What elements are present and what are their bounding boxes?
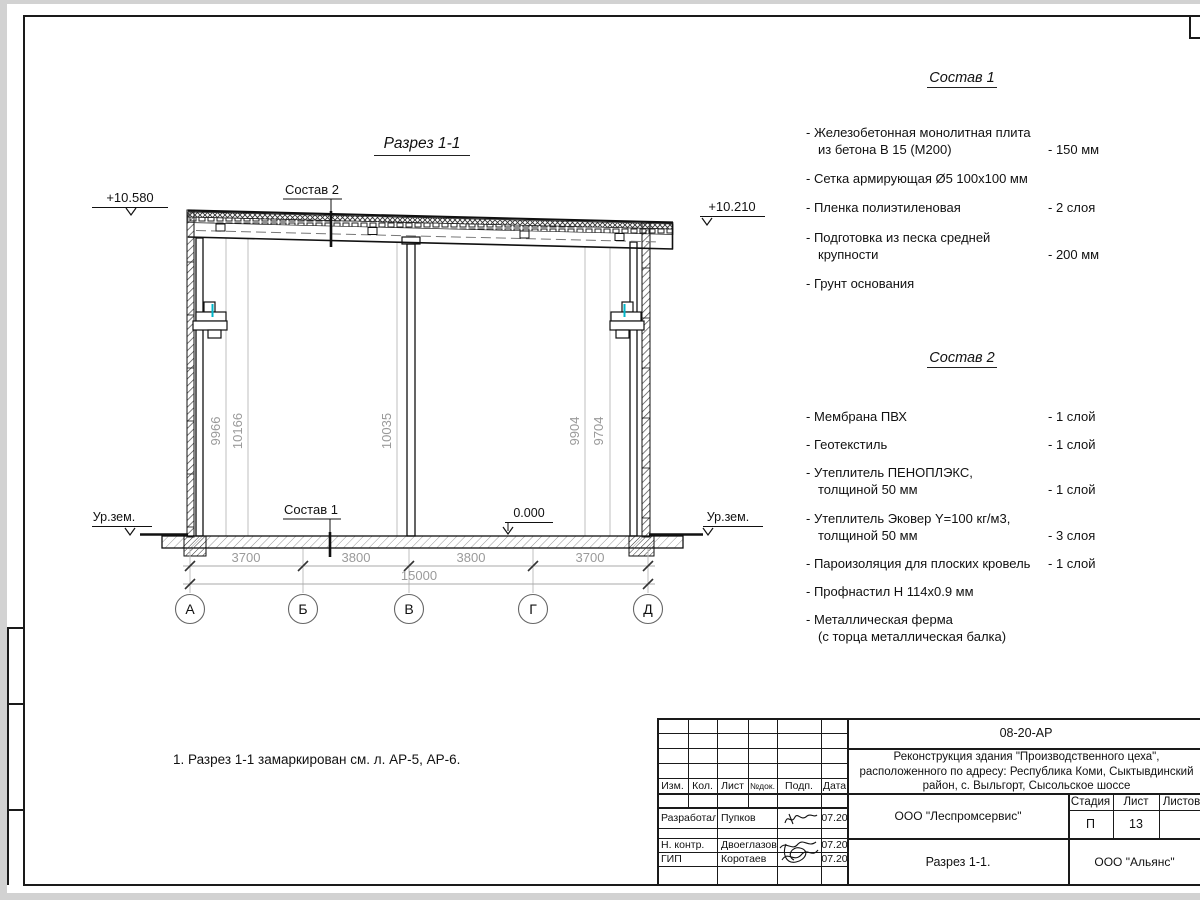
tb-col-list: Лист <box>717 778 748 793</box>
tb-col-izm: Изм. <box>657 778 688 793</box>
tb-col-ndoc: №док. <box>748 778 777 793</box>
tb-row-role: Н. контр. <box>661 838 716 852</box>
tb-stage-value: П <box>1068 810 1113 838</box>
tb-row-name: Коротаев <box>721 852 777 866</box>
tb-col-podp: Подп. <box>777 778 821 793</box>
tb-row-date: 07.20 <box>821 838 848 852</box>
tb-row-role: Разработал <box>661 808 716 828</box>
tb-sheets-label: Листов <box>1159 793 1200 810</box>
title-block: Изм. Кол. Лист №док. Подп. Дата Разработ… <box>0 0 1200 900</box>
tb-sheet-title: Разрез 1-1. <box>848 839 1068 885</box>
tb-col-kol: Кол. <box>688 778 717 793</box>
tb-row-date: 07.20 <box>821 852 848 866</box>
tb-row-role: ГИП <box>661 852 716 866</box>
tb-contractor: ООО "Альянс" <box>1069 839 1200 885</box>
tb-row-date: 07.20 <box>821 808 848 828</box>
signature-1 <box>781 810 819 828</box>
tb-sheet-label: Лист <box>1113 793 1159 810</box>
tb-row-name: Пупков <box>721 808 776 828</box>
tb-stage-label: Стадия <box>1068 793 1113 810</box>
tb-row-name: Двоеглазов <box>721 838 777 852</box>
tb-col-data: Дата <box>821 778 848 793</box>
signature-2 <box>776 838 820 868</box>
tb-org: ООО "Леспромсервис" <box>848 794 1068 838</box>
drawing-sheet: { "page": { "drawing_title": "Разрез 1-1… <box>0 0 1200 900</box>
tb-sheet-value: 13 <box>1113 810 1159 838</box>
tb-doc-number: 08-20-АР <box>848 718 1200 748</box>
tb-project-name: Реконструкция здания "Производственного … <box>849 749 1200 794</box>
